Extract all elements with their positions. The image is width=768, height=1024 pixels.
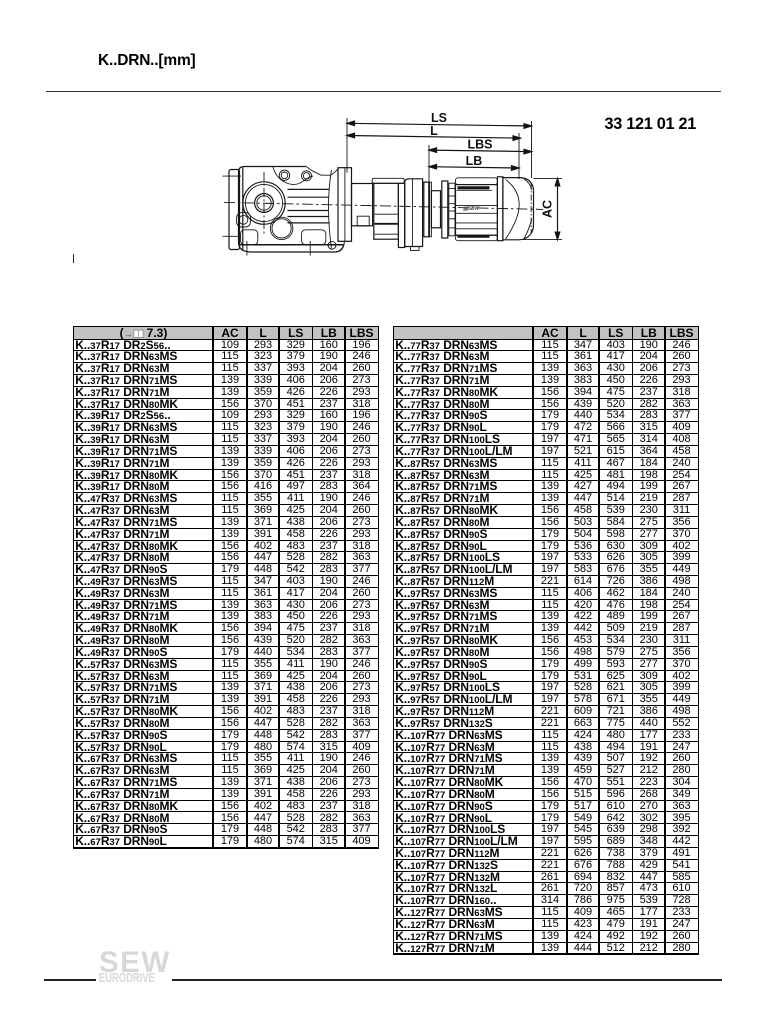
svg-text:LB: LB <box>466 154 483 168</box>
svg-text:L: L <box>430 124 438 138</box>
svg-text:LBS: LBS <box>468 137 493 151</box>
svg-text:▤SEW: ▤SEW <box>463 206 480 212</box>
